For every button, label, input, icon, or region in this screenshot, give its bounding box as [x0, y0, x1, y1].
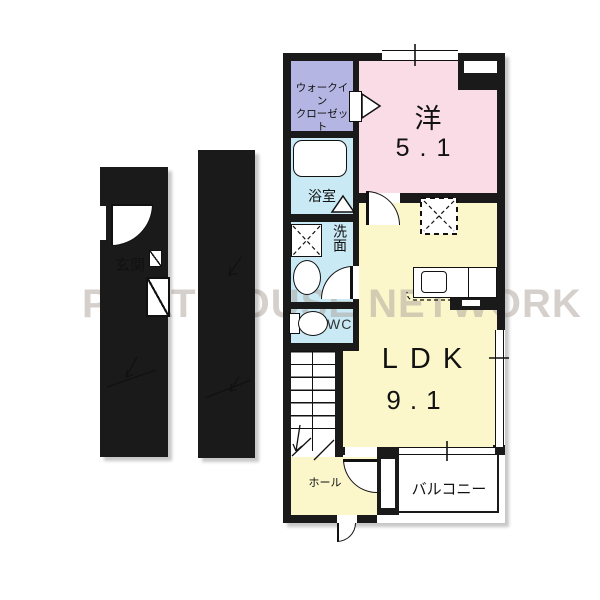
balcony-sliding-window	[399, 447, 495, 455]
walk-in-closet-label: ウォークイン クローゼット	[292, 82, 352, 134]
walk-in-closet-label-line1: ウォークイン	[296, 82, 349, 107]
western-room-label: 洋	[398, 97, 458, 136]
toilet-bowl-symbol	[298, 311, 328, 336]
bathroom-label: 浴室	[291, 186, 353, 206]
entrance-door-arc	[337, 523, 356, 542]
hall-label: ホール	[294, 474, 356, 490]
hall-balcony-opening	[381, 459, 395, 508]
wall-washroom-wc	[291, 302, 353, 309]
washing-machine-symbol	[291, 224, 322, 257]
corner-window	[464, 61, 497, 73]
washroom-doorway	[353, 266, 359, 299]
shoe-cabinet-symbol	[146, 277, 170, 317]
kitchen-stub-slot	[462, 300, 480, 306]
balcony-label: バルコニー	[400, 478, 498, 499]
ldk-size: 9.1	[363, 385, 473, 416]
wall-ldk-hall-a	[335, 447, 345, 455]
wall-hall-bottom-a	[283, 515, 337, 523]
genkan-label: 玄関	[106, 254, 154, 275]
wall-left	[283, 53, 291, 523]
wall-right-upper	[497, 53, 505, 330]
western-room-size: 5.1	[388, 134, 468, 163]
walk-in-closet-label-line2: クローゼット	[296, 108, 349, 133]
ldk-label: LDK	[372, 343, 484, 376]
ldk-room-strip	[343, 351, 359, 447]
wall-stairs-ldk	[335, 351, 343, 457]
unit-step-divider	[312, 351, 313, 451]
right-wall-window	[495, 330, 504, 447]
stair-tower-walls	[198, 150, 255, 458]
hall-doorway	[345, 447, 377, 455]
washroom-label: 洗面	[330, 224, 350, 268]
top-window	[382, 50, 458, 61]
wall-wc-stairs	[283, 343, 359, 351]
porch-side-window	[100, 206, 106, 240]
wall-bath-washroom	[283, 214, 359, 222]
entrance-doorway	[337, 515, 357, 523]
bathtub-symbol	[293, 140, 347, 177]
floorplan-canvas: PITAT HOUSE NETWORK 玄関	[0, 0, 600, 600]
wall-hall-bottom-b	[357, 515, 377, 523]
kitchen-sink-symbol	[421, 271, 447, 293]
wall-top-left	[283, 53, 382, 61]
washbasin-symbol	[293, 260, 321, 295]
toilet-label: WC	[327, 316, 355, 332]
kitchen-counter-divider	[468, 268, 469, 297]
